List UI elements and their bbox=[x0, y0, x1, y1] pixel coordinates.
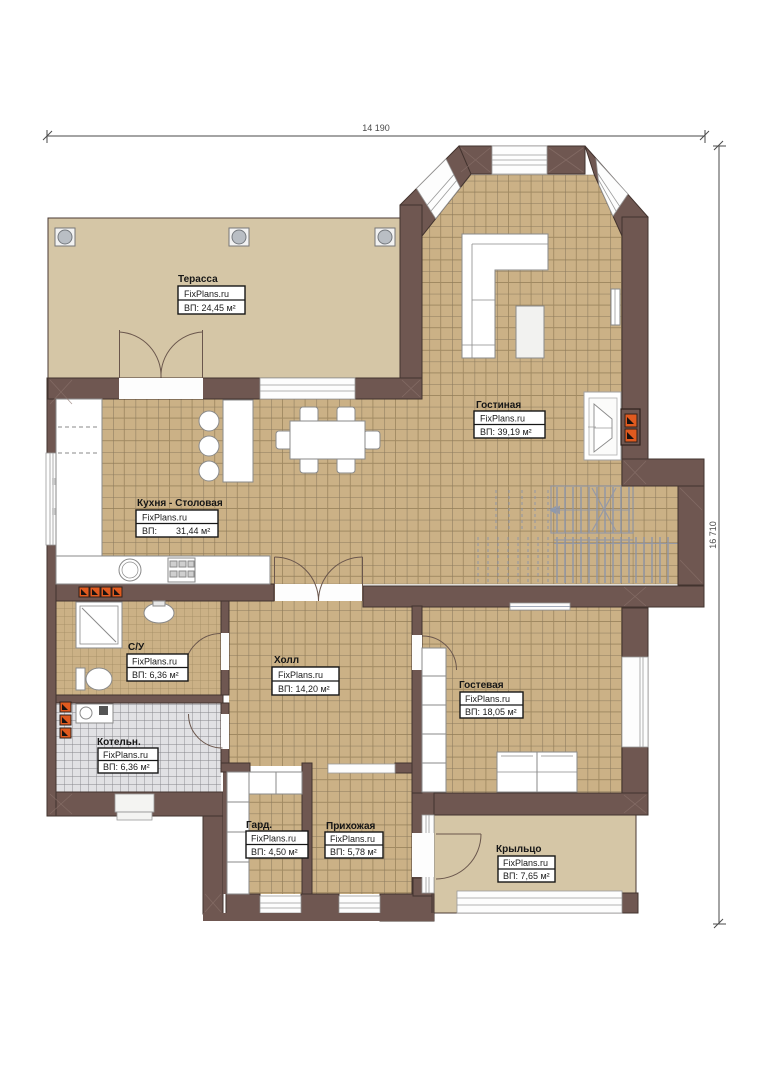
svg-text:14 190: 14 190 bbox=[362, 123, 390, 133]
svg-text:ВП: 14,20 м²: ВП: 14,20 м² bbox=[278, 684, 330, 694]
svg-text:FixPlans.ru: FixPlans.ru bbox=[103, 750, 148, 760]
svg-text:FixPlans.ru: FixPlans.ru bbox=[184, 289, 229, 299]
svg-text:Терасса: Терасса bbox=[178, 274, 218, 285]
svg-text:ВП: 24,45 м²: ВП: 24,45 м² bbox=[184, 303, 236, 313]
svg-text:ВП: 7,65 м²: ВП: 7,65 м² bbox=[503, 871, 550, 881]
svg-text:Крыльцо: Крыльцо bbox=[496, 844, 542, 855]
svg-text:ВП: 6,36 м²: ВП: 6,36 м² bbox=[132, 670, 179, 680]
svg-text:FixPlans.ru: FixPlans.ru bbox=[503, 858, 548, 868]
svg-text:Гостиная: Гостиная bbox=[476, 400, 521, 411]
svg-text:FixPlans.ru: FixPlans.ru bbox=[251, 834, 296, 844]
svg-text:ВП: 5,78 м²: ВП: 5,78 м² bbox=[330, 847, 377, 857]
svg-text:ВП: 4,50 м²: ВП: 4,50 м² bbox=[251, 847, 298, 857]
svg-text:ВП: 18,05 м²: ВП: 18,05 м² bbox=[465, 707, 517, 717]
svg-text:Прихожая: Прихожая bbox=[326, 821, 376, 832]
svg-text:FixPlans.ru: FixPlans.ru bbox=[330, 834, 375, 844]
svg-text:ВП:: ВП: bbox=[142, 526, 157, 536]
svg-text:Гостевая: Гостевая bbox=[459, 680, 504, 691]
svg-text:FixPlans.ru: FixPlans.ru bbox=[278, 670, 323, 680]
svg-text:Холл: Холл bbox=[274, 655, 299, 666]
svg-text:С/У: С/У bbox=[128, 642, 145, 653]
svg-text:FixPlans.ru: FixPlans.ru bbox=[132, 657, 177, 667]
svg-text:FixPlans.ru: FixPlans.ru bbox=[142, 513, 187, 523]
svg-text:ВП: 39,19 м²: ВП: 39,19 м² bbox=[480, 427, 532, 437]
svg-text:Гард.: Гард. bbox=[246, 820, 272, 831]
svg-text:FixPlans.ru: FixPlans.ru bbox=[480, 414, 525, 424]
svg-text:Кухня - Столовая: Кухня - Столовая bbox=[137, 498, 223, 509]
svg-text:Котельн.: Котельн. bbox=[97, 737, 141, 748]
svg-text:ВП: 6,36 м²: ВП: 6,36 м² bbox=[103, 762, 150, 772]
svg-text:FixPlans.ru: FixPlans.ru bbox=[465, 694, 510, 704]
svg-text:31,44 м²: 31,44 м² bbox=[176, 526, 210, 536]
svg-text:16 710: 16 710 bbox=[708, 521, 718, 549]
